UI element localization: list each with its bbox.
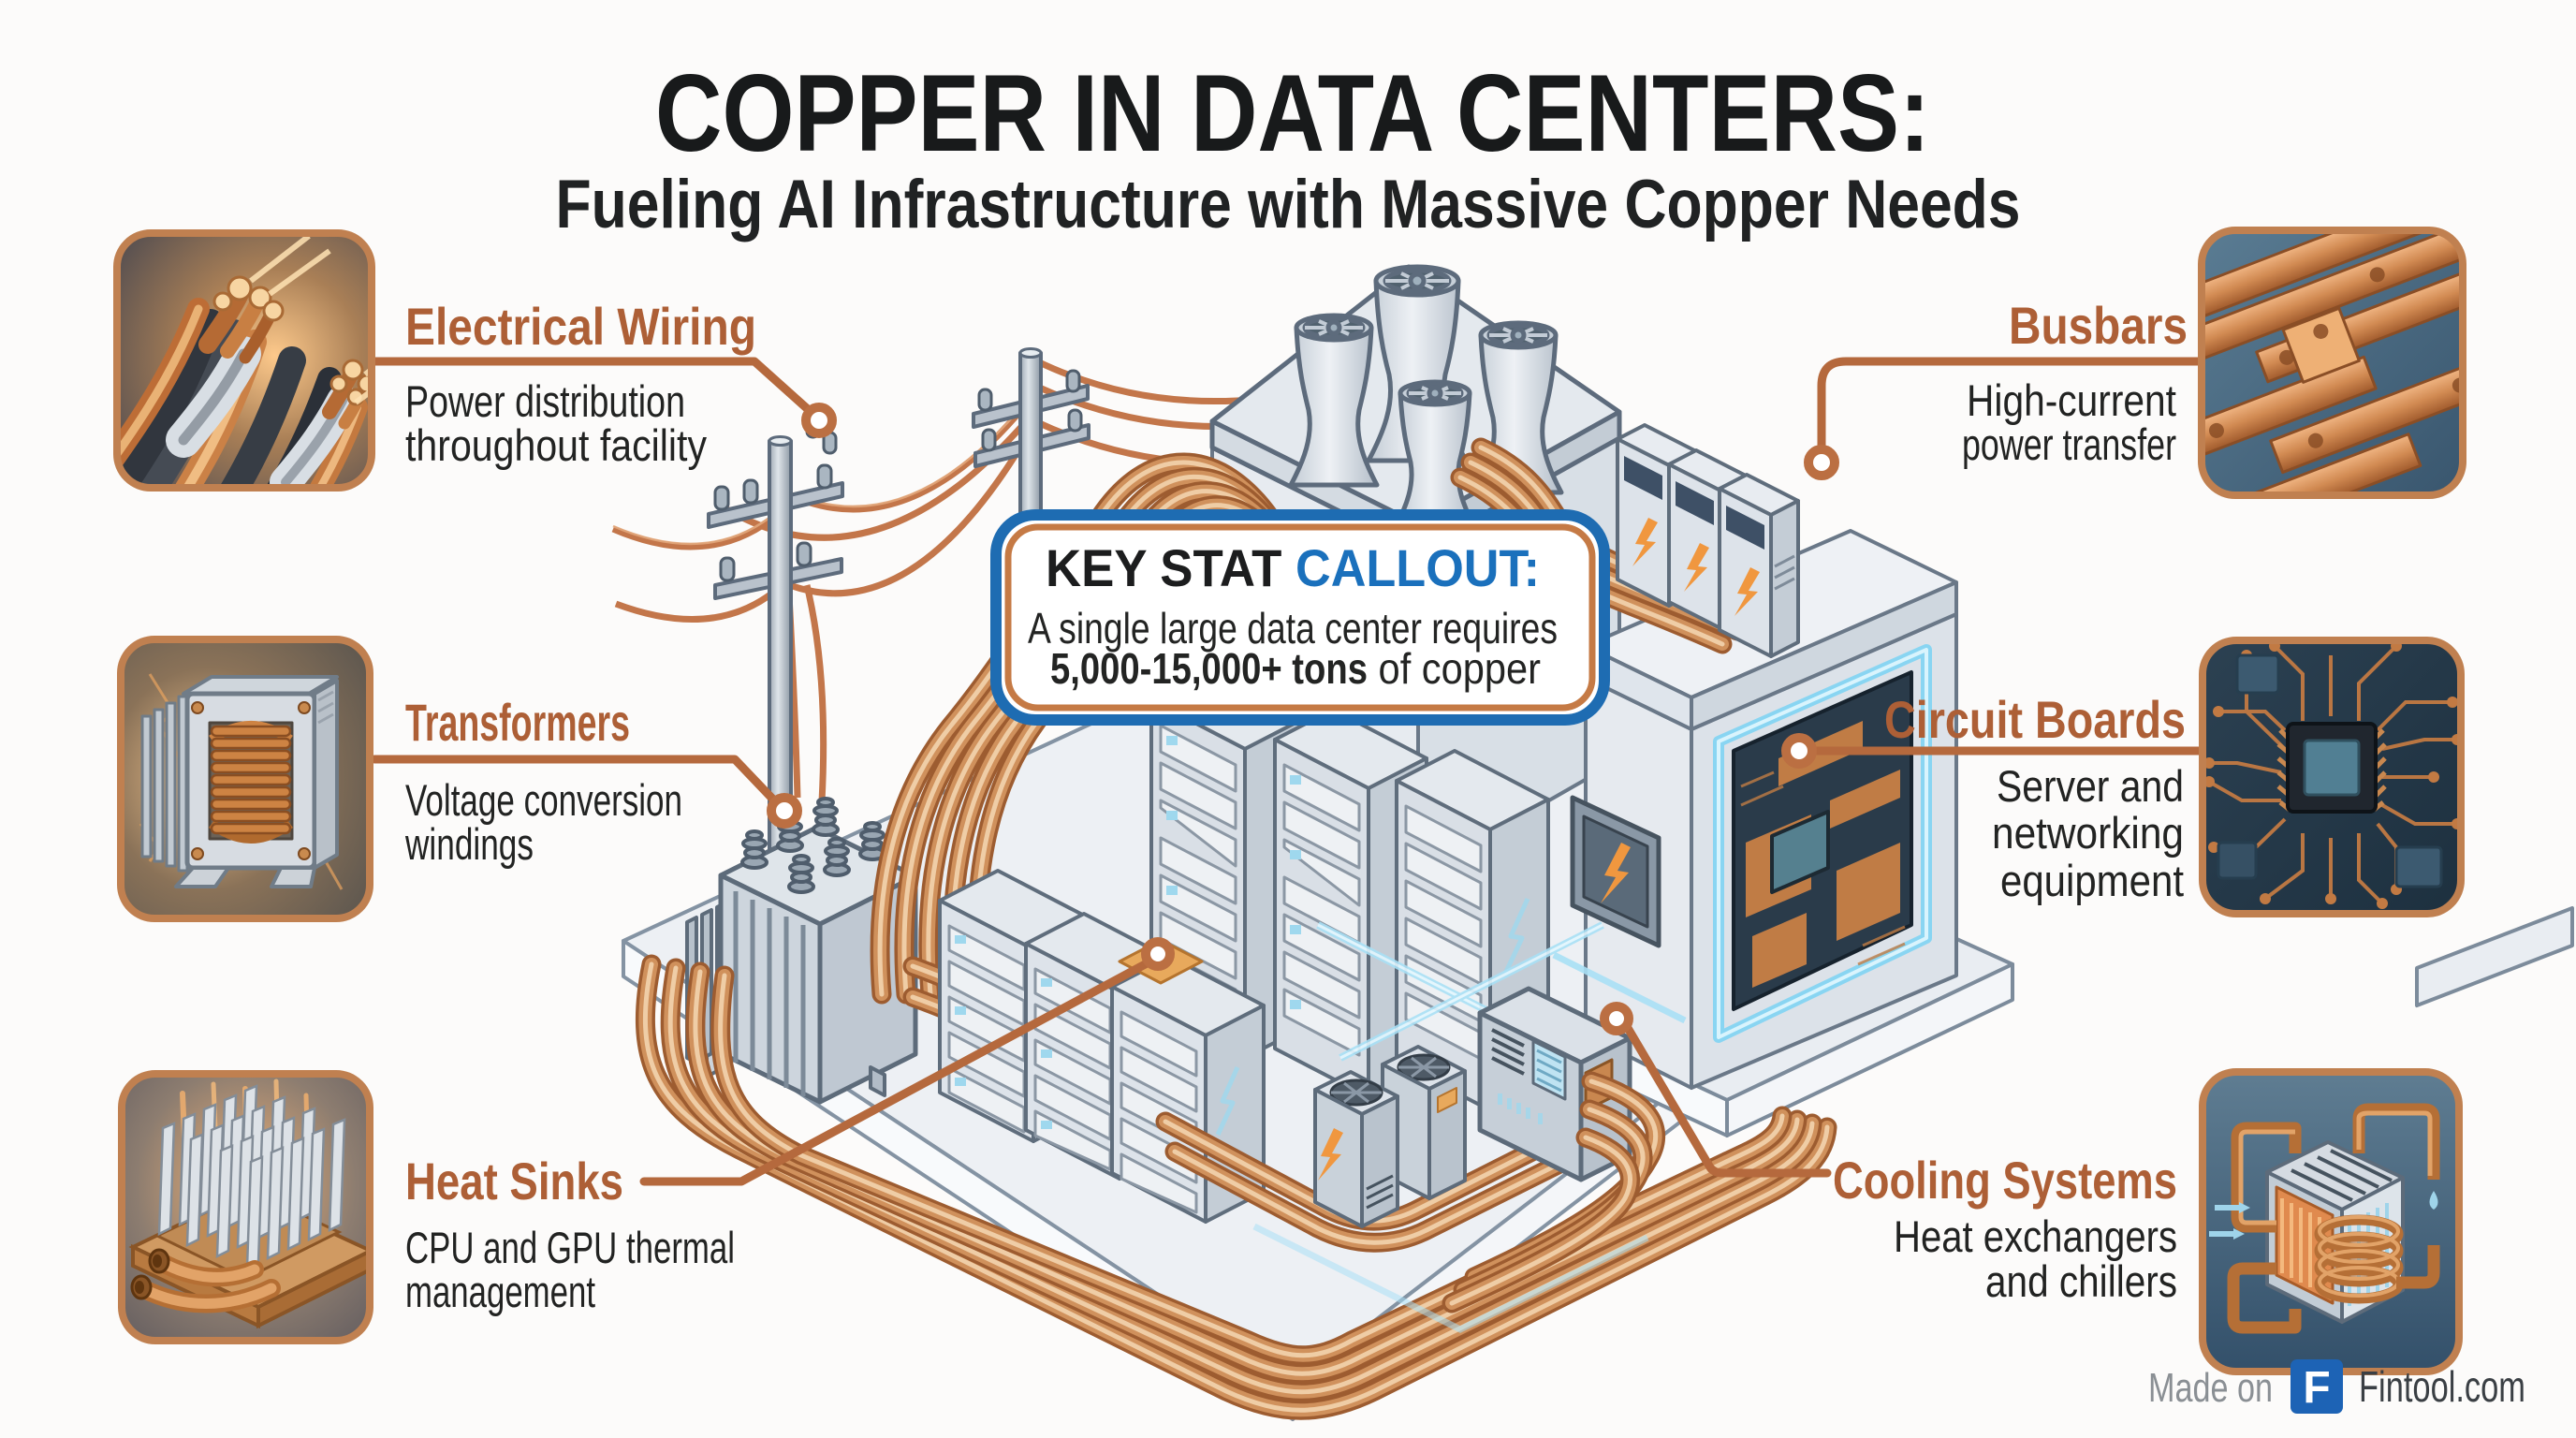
svg-text:Voltage conversion: Voltage conversion	[405, 775, 682, 825]
svg-text:and chillers: and chillers	[1985, 1256, 2177, 1306]
svg-text:windings: windings	[404, 819, 534, 869]
svg-text:Transformers: Transformers	[405, 693, 630, 752]
svg-text:Circuit Boards: Circuit Boards	[1884, 690, 2186, 749]
svg-text:Made on: Made on	[2148, 1365, 2273, 1411]
svg-text:power transfer: power transfer	[1962, 419, 2176, 469]
svg-text:of copper: of copper	[1368, 644, 1541, 693]
svg-text:F: F	[2303, 1363, 2330, 1413]
svg-text:CALLOUT:: CALLOUT:	[1295, 538, 1540, 597]
svg-text:CPU and GPU thermal: CPU and GPU thermal	[405, 1223, 735, 1272]
svg-text:Electrical Wiring: Electrical Wiring	[405, 297, 756, 356]
svg-text:KEY STAT: KEY STAT	[1046, 538, 1295, 597]
svg-text:Power distribution: Power distribution	[405, 376, 685, 426]
svg-text:High-current: High-current	[1967, 375, 2176, 425]
svg-text:networking: networking	[1992, 808, 2184, 858]
svg-text:throughout facility: throughout facility	[405, 420, 707, 470]
svg-text:Server and: Server and	[1997, 761, 2184, 811]
svg-text:Cooling Systems: Cooling Systems	[1833, 1151, 2177, 1210]
svg-text:Heat exchangers: Heat exchangers	[1894, 1211, 2177, 1261]
svg-text:Busbars: Busbars	[2009, 296, 2188, 355]
svg-text:Fintool.com: Fintool.com	[2359, 1362, 2525, 1411]
svg-text:Heat Sinks: Heat Sinks	[405, 1152, 623, 1211]
svg-text:COPPER IN DATA CENTERS:: COPPER IN DATA CENTERS:	[655, 51, 1930, 174]
svg-text:Fueling AI Infrastructure with: Fueling AI Infrastructure with Massive C…	[556, 167, 2021, 242]
svg-text:equipment: equipment	[2000, 856, 2184, 905]
svg-text:management: management	[405, 1267, 595, 1316]
svg-text:5,000-15,000+ tons: 5,000-15,000+ tons	[1050, 644, 1368, 693]
